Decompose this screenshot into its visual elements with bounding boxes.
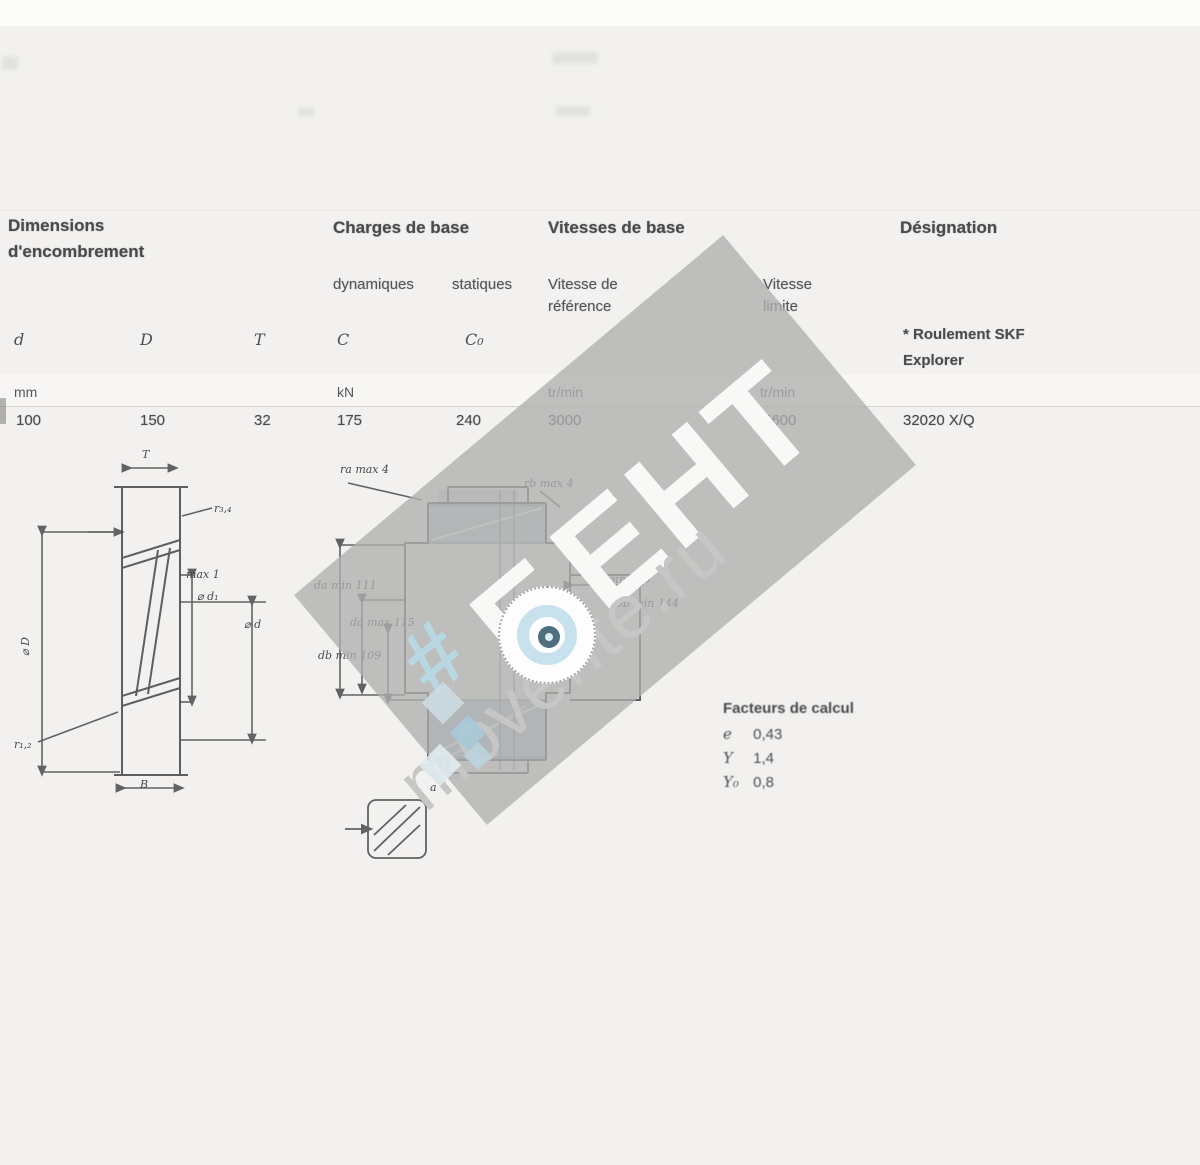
col-letter-D: D [140,330,153,349]
subheader-ref-speed-line1: Vitesse de [548,276,618,293]
left-bearing-drawing: T r₃,₄ max 1 ⌀ d₁ ⌀ D ⌀ d r₁,₂ B [10,440,310,810]
col-group-designation: Désignation [900,218,997,238]
subheader-ref-speed-line2: référence [548,298,611,315]
mid-fig-label-ra: ra max 4 [340,463,389,476]
calc-factor-y: Y 1,4 [723,749,854,767]
left-fig-label-D: ⌀ D [19,637,32,656]
col-group-dimensions-line2: d'encombrement [8,242,144,262]
col-letter-T: T [254,330,265,349]
left-fig-label-B: B [140,778,148,791]
col-group-dimensions-line1: Dimensions [8,216,104,236]
calc-factor-e-label: e [723,725,749,743]
left-fig-label-d: ⌀ d [244,618,261,631]
cell-outer-D: 150 [140,412,165,429]
page-edge-mark [0,398,6,424]
calc-factor-e-value: 0,43 [753,726,782,743]
col-group-loads: Charges de base [333,218,469,238]
subheader-static: statiques [452,276,512,293]
artifact-smudge [552,52,598,64]
col-letter-d: d [14,330,24,349]
subheader-dynamic: dynamiques [333,276,414,293]
header-top-rule [0,210,1200,211]
cell-load-C: 175 [337,412,362,429]
left-fig-label-r12: r₁,₂ [14,738,32,751]
artifact-smudge [556,106,590,116]
cell-designation: 32020 X/Q [903,412,975,429]
artifact-smudge [298,108,314,116]
artifact-smudge [2,56,18,70]
unit-kn: kN [337,384,354,400]
calc-factor-y-label: Y [723,749,749,767]
left-fig-label-T: T [142,448,149,461]
cell-load-C0: 240 [456,412,481,429]
cell-bore-d: 100 [16,412,41,429]
calc-factor-y0-value: 0,8 [753,774,774,791]
cell-width-T: 32 [254,412,271,429]
calc-factors-block: Facteurs de calcul e 0,43 Y 1,4 Y₀ 0,8 [723,700,854,791]
left-fig-label-max: max 1 [186,568,220,581]
skf-explorer-note-line2: Explorer [903,352,964,369]
left-bearing-drawing-svg [10,440,310,810]
skf-explorer-note-line1: * Roulement SKF [903,326,1025,343]
calc-factor-e: e 0,43 [723,725,854,743]
unit-mm: mm [14,384,37,400]
watermark-logo-icon [498,586,596,684]
calc-factor-y0: Y₀ 0,8 [723,773,854,791]
col-letter-C0: C₀ [465,330,484,349]
col-letter-C: C [337,330,349,349]
calc-factor-y0-label: Y₀ [723,773,749,791]
top-white-strip [0,0,1200,26]
left-fig-label-d1: ⌀ d₁ [197,590,219,603]
col-group-speeds: Vitesses de base [548,218,685,238]
left-fig-label-r34: r₃,₄ [214,502,232,515]
calc-factors-title: Facteurs de calcul [723,700,854,717]
logo-center-hole [545,633,553,641]
calc-factor-y-value: 1,4 [753,750,774,767]
catalog-page: Dimensions d'encombrement Charges de bas… [0,0,1200,1165]
